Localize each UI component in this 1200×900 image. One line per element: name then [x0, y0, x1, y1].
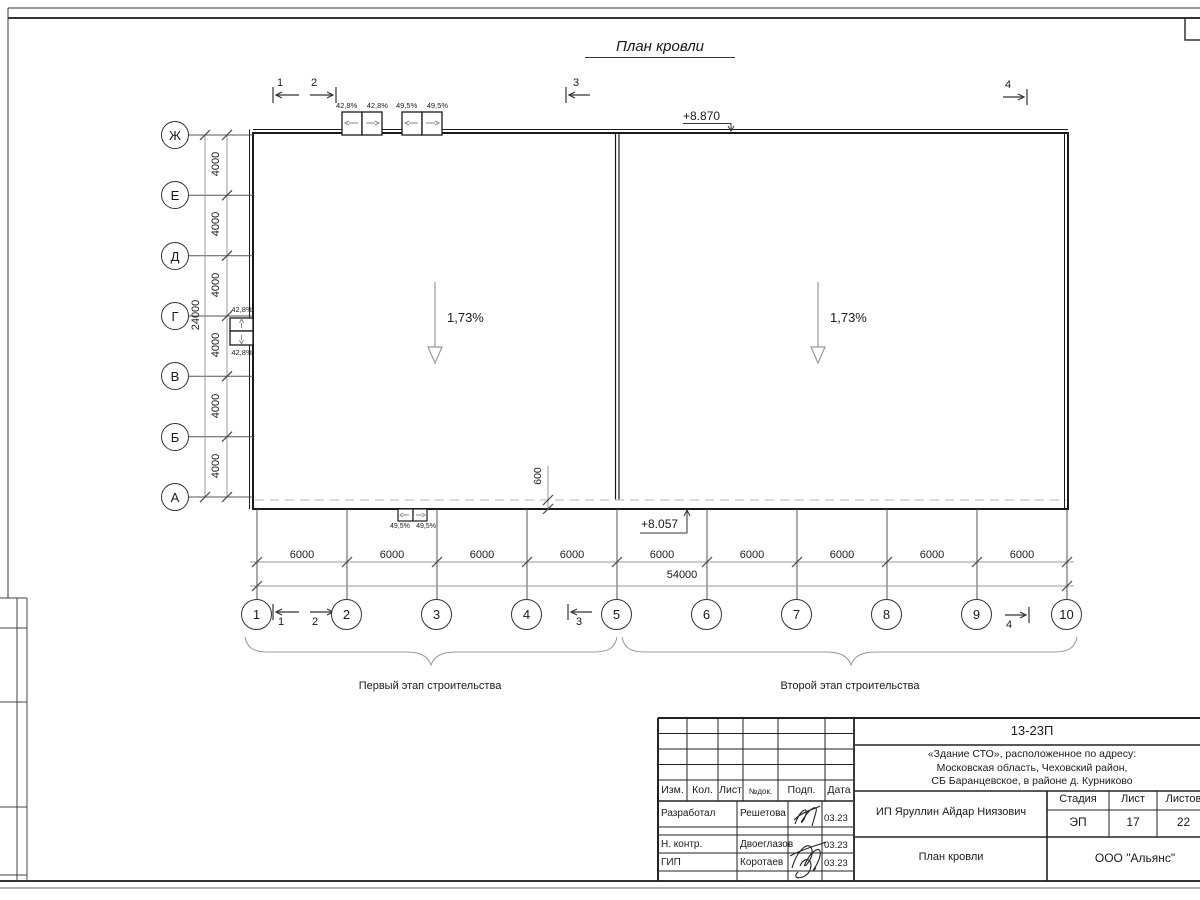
- axis-bubble-col-2: 2: [331, 599, 362, 630]
- drawing-sheet: План кровли Ж Е Д Г В Б А 1 2 3 4 5 6 7 …: [0, 0, 1200, 900]
- tb-date-developer: 03.23: [824, 813, 848, 824]
- tb-client: ИП Яруллин Айдар Ниязович: [855, 806, 1047, 818]
- axis-bubble-col-3: 3: [421, 599, 452, 630]
- tb-header-data: Дата: [825, 784, 853, 796]
- tb-name-gip: Коротаев: [740, 857, 783, 868]
- dim-4000-3: 4000: [210, 255, 222, 315]
- dim-54000: 54000: [642, 569, 722, 581]
- tb-sheets-label: Листов: [1157, 793, 1200, 805]
- unit-label: 49,5%: [396, 101, 417, 110]
- roof-unit-labels-top-a: 42,8% 42,8%: [336, 101, 388, 110]
- stage-label-first: Первый этап строительства: [320, 680, 540, 692]
- unit-label: 42,8%: [336, 101, 357, 110]
- tb-date-ncontrol: 03.23: [824, 840, 848, 851]
- axis-bubble-row-v: В: [161, 362, 189, 390]
- section-label-3-top: 3: [571, 77, 581, 89]
- tb-stage-label: Стадия: [1047, 793, 1109, 805]
- unit-label: 49,5%: [427, 101, 448, 110]
- slope-label-right: 1,73%: [830, 310, 867, 325]
- tb-sheet-value: 17: [1109, 815, 1157, 829]
- axis-bubble-col-8: 8: [871, 599, 902, 630]
- titleblock-doc-number: 13-23П: [932, 723, 1132, 738]
- tb-sheet-label: Лист: [1109, 793, 1157, 805]
- tb-header-ndok: №док.: [743, 787, 778, 796]
- roof-unit-labels-bottom: 49,5% 49,5%: [390, 523, 436, 530]
- dim-6000-9: 6000: [992, 549, 1052, 561]
- section-label-2-bottom: 2: [310, 616, 320, 628]
- dim-6000-6: 6000: [722, 549, 782, 561]
- section-label-3-bottom: 3: [574, 616, 584, 628]
- tb-stage-value: ЭП: [1047, 815, 1109, 829]
- titleblock-project: «Здание СТО», расположенное по адресу: М…: [922, 748, 1142, 789]
- dim-6000-1: 6000: [272, 549, 332, 561]
- roof-unit-label-left-lower: 42,8%: [228, 348, 256, 357]
- tb-name-ncontrol: Двоеглазов: [740, 839, 793, 850]
- tb-sheets-value: 22: [1157, 815, 1200, 829]
- roof-unit-boxes-left: [230, 318, 253, 345]
- tb-sheet-title: План кровли: [855, 851, 1047, 863]
- stage-label-second: Второй этап строительства: [740, 680, 960, 692]
- stage-braces: [245, 637, 1077, 665]
- axis-bubble-row-b: Б: [161, 423, 189, 451]
- axis-bubble-col-5: 5: [601, 599, 632, 630]
- axis-bubble-row-a: А: [161, 483, 189, 511]
- dim-24000: 24000: [190, 275, 202, 355]
- elevation-top: +8.870: [683, 109, 720, 123]
- slope-label-left: 1,73%: [447, 310, 484, 325]
- dim-4000-5: 4000: [210, 376, 222, 436]
- roof-unit-boxes-bottom: [398, 509, 427, 521]
- section-label-4-top: 4: [1003, 79, 1013, 91]
- unit-label: 42,8%: [367, 101, 388, 110]
- dim-6000-2: 6000: [362, 549, 422, 561]
- section-label-1-bottom: 1: [276, 616, 286, 628]
- tb-name-developer: Решетова: [740, 808, 786, 819]
- tb-header-list: Лист: [718, 784, 743, 796]
- section-label-2-top: 2: [309, 77, 319, 89]
- drawing-title: План кровли: [585, 38, 735, 58]
- dim-4000-2: 4000: [210, 194, 222, 254]
- dim-6000-4: 6000: [542, 549, 602, 561]
- left-margin-stamp: [0, 598, 27, 881]
- axis-bubble-row-e: Е: [161, 181, 189, 209]
- tb-role-gip: ГИП: [661, 857, 681, 868]
- axis-bubble-col-9: 9: [961, 599, 992, 630]
- dim-6000-7: 6000: [812, 549, 872, 561]
- axis-bubble-row-zh: Ж: [161, 121, 189, 149]
- elevation-bottom: +8.057: [641, 517, 678, 531]
- dim-4000-4: 4000: [210, 315, 222, 375]
- axis-bubble-col-4: 4: [511, 599, 542, 630]
- axis-bubble-col-1: 1: [241, 599, 272, 630]
- axis-bubble-col-7: 7: [781, 599, 812, 630]
- dim-6000-3: 6000: [452, 549, 512, 561]
- dim-6000-8: 6000: [902, 549, 962, 561]
- slope-arrow-right: [811, 282, 825, 363]
- unit-label: 49,5%: [416, 523, 436, 530]
- section-label-1-top: 1: [275, 77, 285, 89]
- section-marks: [273, 87, 1029, 623]
- axis-bubble-col-6: 6: [691, 599, 722, 630]
- project-line: «Здание СТО», расположенное по адресу:: [922, 748, 1142, 762]
- slope-arrow-left: [428, 282, 442, 363]
- tb-header-kol: Кол.: [687, 784, 718, 796]
- tb-header-izm: Изм.: [658, 784, 687, 796]
- tb-header-podp: Подп.: [778, 784, 825, 796]
- overhang-dimension: [543, 466, 553, 514]
- axis-bubble-row-d: Д: [161, 242, 189, 270]
- tb-role-developer: Разработал: [661, 808, 715, 819]
- dim-4000-6: 4000: [210, 436, 222, 496]
- project-line: Московская область, Чеховский район,: [922, 762, 1142, 776]
- axis-bubble-row-g: Г: [161, 302, 189, 330]
- dim-600: 600: [532, 456, 544, 496]
- unit-label: 49,5%: [390, 523, 410, 530]
- project-line: СБ Баранцевское, в районе д. Курниково: [922, 775, 1142, 789]
- roof-unit-label-left-upper: 42,8%: [228, 305, 256, 314]
- tb-date-gip: 03.23: [824, 858, 848, 869]
- dim-4000-1: 4000: [210, 134, 222, 194]
- dim-6000-5: 6000: [632, 549, 692, 561]
- tb-role-ncontrol: Н. контр.: [661, 839, 702, 850]
- tb-company: ООО "Альянс": [1047, 851, 1200, 865]
- signature-squiggles: [790, 806, 826, 878]
- axis-bubble-col-10: 10: [1051, 599, 1082, 630]
- building-outline: [250, 130, 1069, 510]
- section-label-4-bottom: 4: [1004, 619, 1014, 631]
- roof-unit-labels-top-b: 49,5% 49,5%: [396, 101, 448, 110]
